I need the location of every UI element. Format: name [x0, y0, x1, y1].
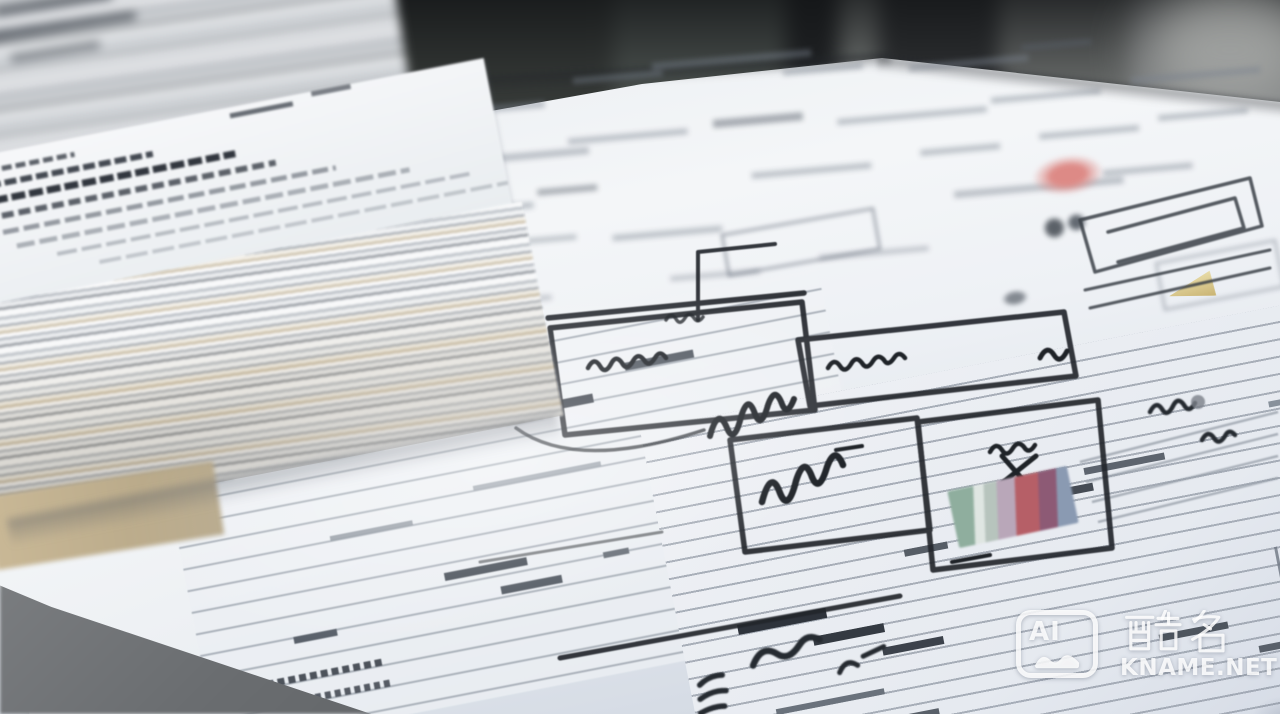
- glyph-ku: [1127, 611, 1180, 649]
- brand-domain: KNAME.NET: [1120, 655, 1277, 681]
- glyph-ming: [1193, 611, 1223, 651]
- brand-cjk-glyphs: [1120, 610, 1238, 654]
- ai-image-icon: AI: [1016, 610, 1098, 678]
- watermark-text: 酷名: [1120, 610, 1277, 681]
- watermark: AI 酷名: [1016, 610, 1277, 681]
- sketched-dot: [1191, 395, 1205, 409]
- sketched-box: [730, 418, 930, 552]
- sketched-box: [798, 312, 1076, 406]
- photo-scene: AI 酷名: [0, 0, 1280, 714]
- mountain-wave-icon: [1024, 631, 1090, 671]
